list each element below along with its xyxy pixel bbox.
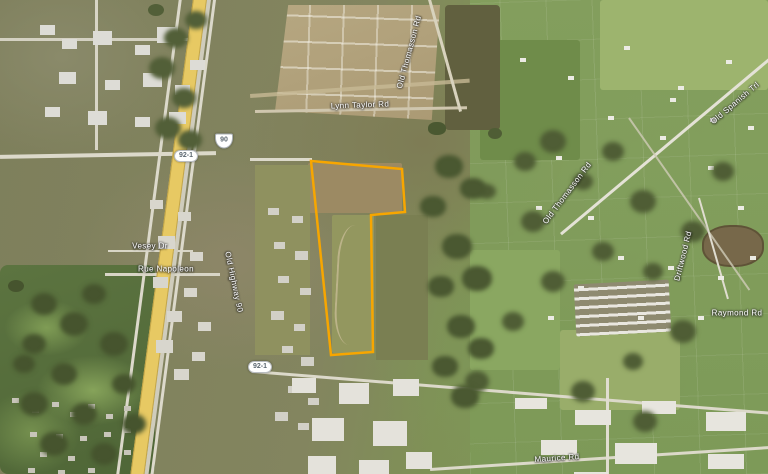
- road-label: Maurice Rd: [534, 452, 579, 464]
- road-label: Old Thomasson Rd: [395, 15, 423, 90]
- road-label: Old Highway 90: [223, 251, 245, 314]
- road-label: Raymond Rd: [712, 309, 763, 318]
- road-label: Old Thomasson Rd: [541, 160, 593, 225]
- road-label: Vesey Dr: [132, 242, 168, 251]
- road-label: Rue Napoleon: [138, 265, 194, 274]
- satellite-map[interactable]: Lynn Taylor RdOld Thomasson RdOld Thomas…: [0, 0, 768, 474]
- route-shield: 90: [215, 134, 233, 149]
- road-label: Lynn Taylor Rd: [331, 99, 390, 110]
- map-label-layer: Lynn Taylor RdOld Thomasson RdOld Thomas…: [0, 0, 768, 474]
- road-label: Driftwood Rd: [672, 230, 693, 282]
- road-label: Old Spanish Trl: [709, 80, 761, 126]
- route-shield: 92-1: [174, 150, 198, 162]
- route-shield: 92-1: [248, 361, 272, 373]
